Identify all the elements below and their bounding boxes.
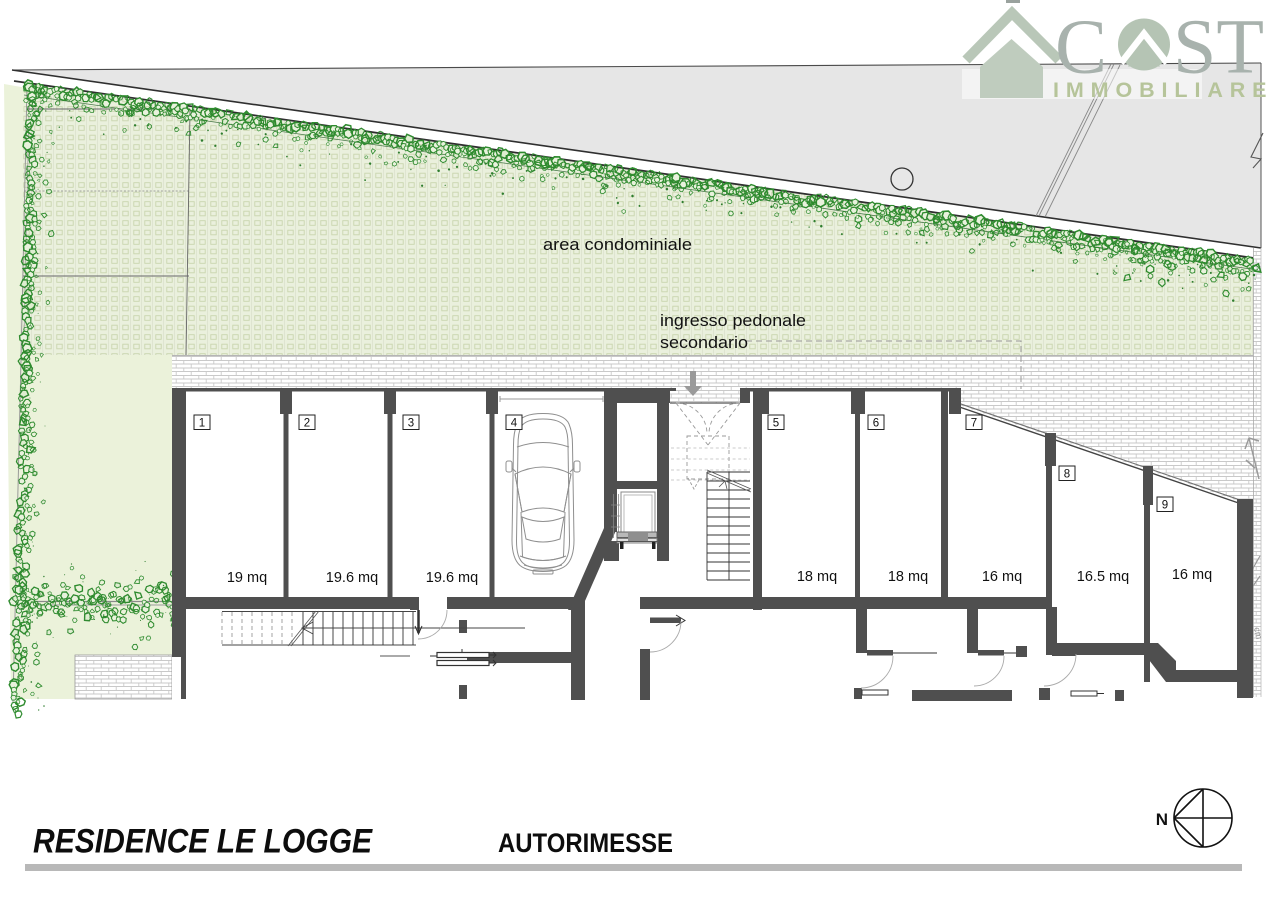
svg-text:7: 7 xyxy=(971,418,977,430)
svg-text:4: 4 xyxy=(511,418,518,430)
svg-text:16 mq: 16 mq xyxy=(1172,567,1212,583)
svg-text:C: C xyxy=(1055,3,1107,90)
svg-text:AUTORIMESSE: AUTORIMESSE xyxy=(498,828,673,858)
svg-text:16.5 mq: 16.5 mq xyxy=(1077,569,1129,585)
svg-text:9: 9 xyxy=(1162,500,1168,512)
svg-text:8: 8 xyxy=(1064,469,1070,481)
svg-text:19.6 mq: 19.6 mq xyxy=(326,570,378,586)
svg-text:18 mq: 18 mq xyxy=(797,569,837,585)
svg-text:RESIDENCE LE LOGGE: RESIDENCE LE LOGGE xyxy=(33,823,373,861)
svg-text:IMMOBILIARE: IMMOBILIARE xyxy=(1053,78,1273,102)
svg-text:ingresso pedonale: ingresso pedonale xyxy=(660,311,806,330)
svg-text:1: 1 xyxy=(199,418,205,430)
svg-text:area condominiale: area condominiale xyxy=(543,235,692,254)
svg-text:2: 2 xyxy=(304,418,310,430)
svg-text:19.6 mq: 19.6 mq xyxy=(426,570,478,586)
svg-text:N: N xyxy=(1156,810,1168,829)
svg-text:5: 5 xyxy=(773,418,779,430)
svg-text:6: 6 xyxy=(873,418,879,430)
svg-text:secondario: secondario xyxy=(660,333,748,352)
svg-text:19 mq: 19 mq xyxy=(227,570,267,586)
svg-text:16 mq: 16 mq xyxy=(982,569,1022,585)
svg-text:ST: ST xyxy=(1173,3,1264,90)
svg-text:18 mq: 18 mq xyxy=(888,569,928,585)
svg-text:3: 3 xyxy=(408,418,414,430)
